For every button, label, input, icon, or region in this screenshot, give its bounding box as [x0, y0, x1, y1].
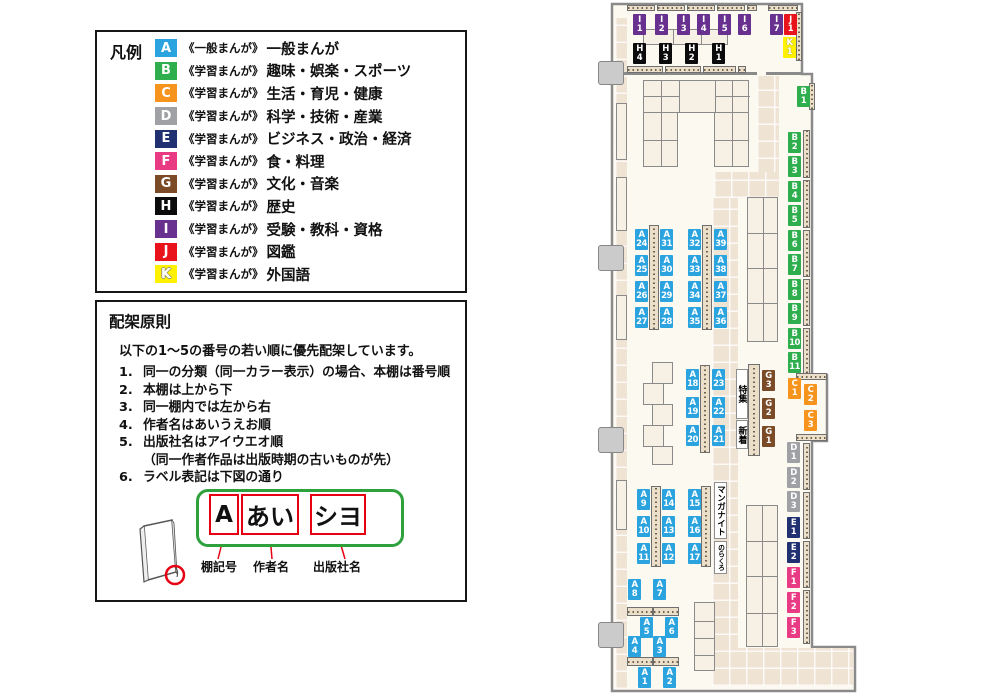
shelf-label-B5: B5: [788, 205, 801, 226]
table-square: [643, 425, 664, 447]
shelf-label-G2: G2: [762, 398, 775, 419]
wall-top-room-right: [766, 72, 802, 75]
shelf-label-A36: A36: [714, 307, 727, 328]
wall-shelf: [803, 279, 810, 326]
door: [598, 245, 624, 271]
shelf-label-G3: G3: [762, 370, 775, 391]
shelf-label-A27: A27: [635, 307, 648, 328]
shelf-label-A10: A10: [637, 516, 650, 537]
wall-shelf: [768, 5, 798, 11]
table-square: [643, 383, 664, 405]
table-block-left-leg: [643, 112, 678, 167]
shelf-label-A21: A21: [712, 425, 725, 446]
shelf-label-J1: J1: [784, 14, 797, 35]
shelf-label-I6: I6: [738, 14, 751, 35]
area-label-マンガナイト: マンガナイト: [714, 482, 727, 539]
shelf-label-I1: I1: [633, 14, 646, 35]
shelf-label-A25: A25: [635, 255, 648, 276]
area-label-新着: 新着: [736, 420, 748, 449]
table-right-lower: [746, 505, 778, 647]
shelf-label-E2: E2: [787, 542, 800, 563]
wall-shelf: [803, 328, 810, 374]
bookshelf: [653, 657, 679, 666]
shelf-label-A37: A37: [714, 281, 727, 302]
shelf-label-A9: A9: [637, 489, 650, 510]
shelf-label-A39: A39: [714, 229, 727, 250]
bookshelf: [701, 486, 711, 567]
shelf-label-A2: A2: [663, 667, 676, 688]
shelf-label-A22: A22: [712, 397, 725, 418]
bookshelf: [627, 657, 653, 666]
wall-shelf: [747, 5, 757, 11]
shelf-label-H2: H2: [685, 43, 698, 64]
shelf-label-A17: A17: [688, 543, 701, 564]
wall-shelf: [803, 130, 810, 178]
bookshelf: [702, 225, 712, 330]
bookshelf: [748, 364, 760, 456]
floor-map: I1I2I3I4I5I6I7J1K1H4H3H2H1B1B2B3B4B5B6B7…: [0, 0, 1000, 700]
shelf-label-B3: B3: [788, 156, 801, 177]
table-block-top: [643, 80, 749, 113]
shelf-label-A5: A5: [640, 617, 653, 638]
shelf-label-B1: B1: [797, 86, 810, 107]
wall-shelf: [803, 541, 810, 588]
shelf-label-C1: C1: [788, 378, 801, 399]
shelf-label-A15: A15: [688, 489, 701, 510]
area-label-のらくろ: のらくろ: [714, 541, 727, 574]
shelf-label-A8: A8: [628, 579, 641, 600]
shelf-label-I5: I5: [718, 14, 731, 35]
shelf-label-D2: D2: [787, 467, 800, 488]
shelf-label-B6: B6: [788, 230, 801, 251]
shelf-label-I3: I3: [677, 14, 690, 35]
shelf-label-E1: E1: [787, 517, 800, 538]
table-left-narrow: [616, 177, 627, 231]
shelf-label-A20: A20: [686, 425, 699, 446]
shelf-label-A14: A14: [662, 489, 675, 510]
wall-shelf: [665, 66, 701, 73]
shelf-label-A23: A23: [712, 369, 725, 390]
corridor-top-right: [757, 76, 779, 176]
shelf-label-A35: A35: [688, 307, 701, 328]
wall-shelf: [627, 66, 663, 73]
wall-shelf: [803, 443, 810, 490]
shelf-label-B7: B7: [788, 254, 801, 275]
shelf-label-A18: A18: [686, 369, 699, 390]
bookshelf: [649, 225, 659, 330]
shelf-label-F1: F1: [787, 567, 800, 588]
bookshelf: [627, 607, 653, 616]
table-right-upper: [747, 197, 778, 342]
table-square: [652, 404, 673, 426]
area-label-特集: 特集: [736, 369, 748, 419]
table-square: [652, 446, 673, 465]
door: [598, 427, 624, 453]
corridor-bottom: [712, 648, 853, 686]
bookshelf: [700, 365, 710, 453]
wall-shelf: [803, 230, 810, 277]
table-bottom-stack: [694, 602, 715, 671]
shelf-label-D1: D1: [787, 442, 800, 463]
shelf-label-A16: A16: [688, 516, 701, 537]
shelf-label-A11: A11: [637, 543, 650, 564]
bookshelf: [653, 607, 679, 616]
shelf-label-B9: B9: [788, 303, 801, 324]
library-manga-floor-map: { "legend": { "title": "凡例", "items": [ …: [0, 0, 1000, 700]
shelf-label-I7: I7: [770, 14, 783, 35]
table-left-narrow: [616, 480, 627, 530]
wall-shelf: [803, 492, 810, 539]
shelf-label-K1: K1: [783, 37, 796, 58]
shelf-label-A28: A28: [660, 307, 673, 328]
wall-shelf: [803, 590, 810, 644]
shelf-label-G1: G1: [762, 426, 775, 447]
shelf-label-F2: F2: [787, 592, 800, 613]
wall-shelf: [803, 180, 810, 228]
shelf-label-A4: A4: [628, 636, 641, 657]
shelf-label-A3: A3: [653, 636, 666, 657]
shelf-label-C3: C3: [804, 410, 817, 431]
table-left-narrow: [616, 295, 627, 340]
shelf-label-B2: B2: [788, 132, 801, 153]
shelf-label-H3: H3: [659, 43, 672, 64]
shelf-label-A24: A24: [635, 229, 648, 250]
table-block-right-leg: [714, 112, 749, 167]
shelf-label-A13: A13: [662, 516, 675, 537]
shelf-label-A12: A12: [662, 543, 675, 564]
shelf-label-A30: A30: [660, 255, 673, 276]
shelf-label-H1: H1: [712, 43, 725, 64]
shelf-label-F3: F3: [787, 617, 800, 638]
shelf-label-B10: B10: [788, 328, 801, 349]
corridor-connector: [714, 172, 779, 198]
wall-shelf: [796, 434, 827, 441]
table-square: [652, 362, 673, 384]
shelf-label-B8: B8: [788, 279, 801, 300]
wall-shelf: [703, 66, 736, 73]
shelf-label-B4: B4: [788, 181, 801, 202]
shelf-label-A32: A32: [688, 229, 701, 250]
shelf-label-C2: C2: [804, 384, 817, 405]
shelf-label-A31: A31: [660, 229, 673, 250]
shelf-label-I2: I2: [655, 14, 668, 35]
wall-shelf: [717, 5, 745, 11]
shelf-label-I4: I4: [697, 14, 710, 35]
wall-shelf: [627, 5, 655, 11]
shelf-label-A33: A33: [688, 255, 701, 276]
shelf-label-H4: H4: [633, 43, 646, 64]
map-walls: [0, 0, 1000, 700]
shelf-label-A34: A34: [688, 281, 701, 302]
wall-shelf: [738, 66, 746, 73]
wall-shelf: [657, 5, 685, 11]
shelf-label-A26: A26: [635, 281, 648, 302]
bookshelf: [651, 486, 661, 567]
shelf-label-A29: A29: [660, 281, 673, 302]
shelf-label-B11: B11: [788, 352, 801, 373]
table-left-narrow: [616, 103, 627, 160]
shelf-label-A38: A38: [714, 255, 727, 276]
shelf-label-A19: A19: [686, 397, 699, 418]
shelf-label-A7: A7: [653, 579, 666, 600]
shelf-label-A6: A6: [665, 617, 678, 638]
shelf-label-D3: D3: [787, 491, 800, 512]
door: [598, 622, 624, 648]
door: [598, 61, 624, 85]
wall-shelf: [687, 5, 715, 11]
shelf-label-A1: A1: [638, 667, 651, 688]
